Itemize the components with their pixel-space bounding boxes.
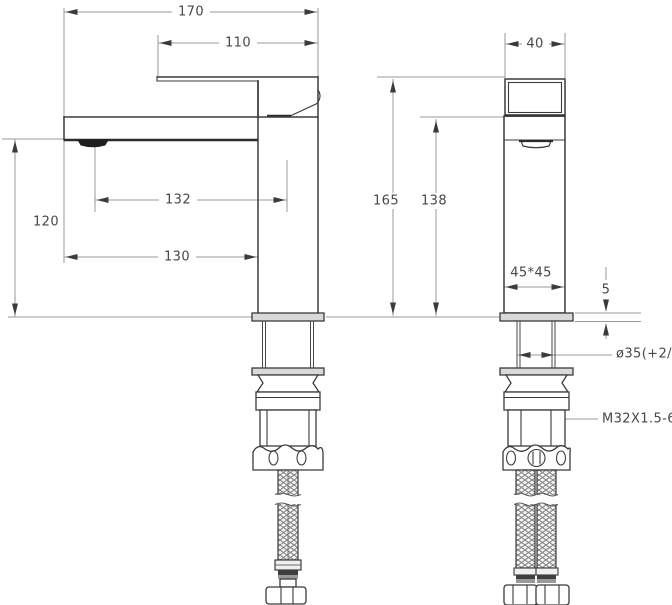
clamp-plate-side bbox=[252, 368, 324, 375]
front-extension-lines bbox=[377, 33, 641, 322]
dim-label-5: 5 bbox=[602, 283, 611, 298]
dimension-handle-width: 40 bbox=[505, 36, 565, 52]
dimension-overall-height: 165 bbox=[368, 79, 404, 316]
mounting-studs-front bbox=[517, 321, 555, 368]
dim-label-40: 40 bbox=[526, 37, 543, 52]
dimension-deck-plate-thickness: 5 bbox=[602, 267, 611, 339]
dim-label-mounting-hole: ø35(+2/-1) bbox=[616, 347, 672, 362]
dim-label-130: 130 bbox=[164, 250, 190, 265]
seal-waist-side bbox=[257, 375, 319, 392]
dim-label-165: 165 bbox=[373, 194, 399, 209]
handle-front bbox=[505, 79, 565, 116]
lock-nut-front bbox=[503, 445, 570, 470]
dimension-spout-reach: 130 bbox=[64, 249, 258, 265]
clamp-plate-front bbox=[500, 368, 573, 375]
threaded-shank-front bbox=[508, 410, 565, 446]
aerator-side bbox=[78, 140, 108, 147]
dimension-handle-length: 110 bbox=[158, 35, 318, 51]
side-extension-lines bbox=[2, 8, 500, 317]
supply-hoses-front bbox=[504, 470, 569, 605]
handle-lever-side bbox=[157, 77, 320, 117]
lock-nut-side bbox=[253, 445, 323, 470]
dim-label-45x45: 45*45 bbox=[510, 266, 552, 281]
side-faucet-body bbox=[64, 77, 324, 604]
hose-hex-nut-side bbox=[266, 587, 306, 604]
technical-drawing-canvas: 170 110 120 132 bbox=[0, 0, 672, 605]
dim-label-170: 170 bbox=[178, 5, 204, 20]
base-flange-side bbox=[252, 313, 324, 321]
front-view: 40 165 138 45*45 5 bbox=[368, 33, 672, 605]
threaded-shank-side bbox=[260, 410, 316, 446]
hose-hex-nut-front-left bbox=[504, 585, 537, 605]
hose-hex-nut-front-right bbox=[536, 585, 569, 605]
dim-label-thread: M32X1.5-6g bbox=[602, 412, 672, 427]
seal-waist-front bbox=[505, 375, 568, 392]
dimension-overall-length: 170 bbox=[64, 4, 318, 20]
dimension-spout-height: 120 bbox=[15, 139, 59, 317]
dimension-mounting-hole: ø35(+2/-1) bbox=[517, 347, 672, 362]
spout-side bbox=[64, 117, 318, 140]
front-faucet-body bbox=[500, 79, 573, 605]
dim-label-120: 120 bbox=[33, 215, 59, 230]
mounting-studs-side bbox=[263, 321, 314, 368]
dim-label-110: 110 bbox=[225, 36, 251, 51]
aerator-front bbox=[519, 141, 553, 148]
dimension-body-height: 138 bbox=[416, 119, 452, 316]
shank-collar-front bbox=[504, 392, 569, 410]
base-flange-front bbox=[500, 313, 573, 321]
shank-collar-side bbox=[256, 392, 320, 410]
supply-hose-side bbox=[266, 470, 306, 604]
faucet-drawing: 170 110 120 132 bbox=[0, 0, 672, 605]
side-view: 170 110 120 132 bbox=[2, 4, 500, 604]
dimension-body-section: 45*45 bbox=[504, 266, 565, 288]
dim-label-138: 138 bbox=[421, 194, 447, 209]
dim-label-132: 132 bbox=[165, 193, 191, 208]
